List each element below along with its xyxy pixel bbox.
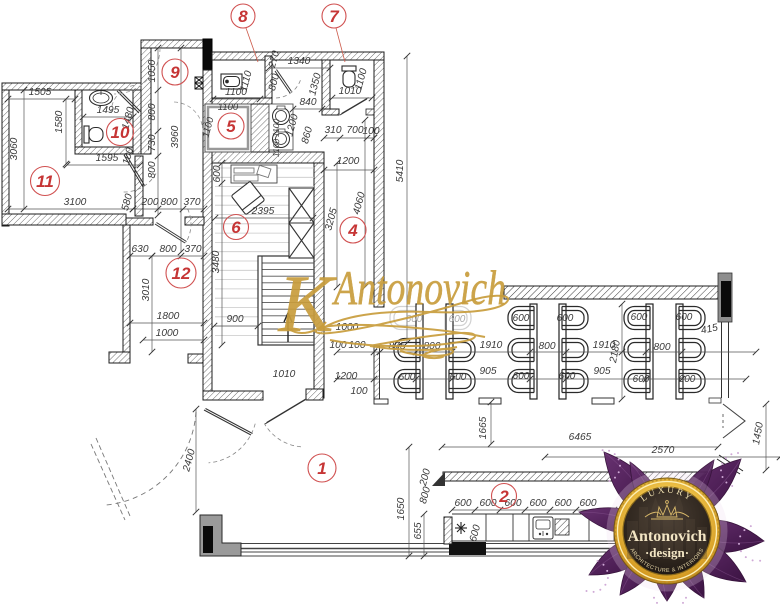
svg-text:Antonovich: Antonovich <box>332 260 506 315</box>
svg-text:905: 905 <box>480 366 497 377</box>
svg-text:1100: 1100 <box>271 138 282 157</box>
svg-text:900: 900 <box>227 314 244 325</box>
svg-text:9: 9 <box>170 63 180 82</box>
svg-text:310: 310 <box>325 125 342 136</box>
svg-text:1505: 1505 <box>29 87 52 98</box>
svg-text:5: 5 <box>226 117 236 136</box>
svg-text:1200: 1200 <box>337 156 360 167</box>
svg-text:1340: 1340 <box>288 56 311 67</box>
svg-text:1665: 1665 <box>478 416 489 439</box>
svg-text:K: K <box>278 258 338 349</box>
svg-text:600: 600 <box>450 372 467 383</box>
svg-text:100: 100 <box>351 386 368 397</box>
svg-text:4: 4 <box>347 221 358 240</box>
svg-text:800: 800 <box>147 103 158 120</box>
svg-text:7: 7 <box>329 7 340 26</box>
svg-text:600: 600 <box>676 312 693 323</box>
svg-text:1100: 1100 <box>218 102 239 113</box>
svg-text:1650: 1650 <box>396 497 407 520</box>
svg-text:700: 700 <box>347 125 364 136</box>
svg-text:1910: 1910 <box>480 340 503 351</box>
svg-text:6465: 6465 <box>569 432 592 443</box>
svg-text:600: 600 <box>633 374 650 385</box>
svg-text:800: 800 <box>147 161 158 178</box>
svg-text:800: 800 <box>539 341 556 352</box>
svg-text:1: 1 <box>317 459 326 478</box>
svg-text:600: 600 <box>455 498 472 509</box>
svg-text:600: 600 <box>513 371 530 382</box>
svg-text:200: 200 <box>141 197 159 208</box>
svg-text:600: 600 <box>449 314 466 325</box>
svg-text:600: 600 <box>513 313 530 324</box>
svg-text:5410: 5410 <box>395 159 406 182</box>
svg-text:10: 10 <box>111 123 130 142</box>
svg-text:8: 8 <box>238 7 248 26</box>
svg-text:630: 630 <box>132 244 149 255</box>
svg-text:1000: 1000 <box>156 328 179 339</box>
svg-text:Antonovich: Antonovich <box>627 528 706 545</box>
svg-text:11: 11 <box>36 172 54 191</box>
svg-text:600: 600 <box>212 165 223 182</box>
svg-text:655: 655 <box>413 522 424 539</box>
svg-text:1580: 1580 <box>54 110 65 133</box>
svg-text:1200: 1200 <box>335 371 358 382</box>
svg-text:3060: 3060 <box>9 137 20 160</box>
svg-text:1100: 1100 <box>271 118 282 137</box>
svg-text:840: 840 <box>300 97 317 108</box>
svg-text:800: 800 <box>161 197 178 208</box>
svg-text:600: 600 <box>530 498 547 509</box>
svg-text:1595: 1595 <box>96 153 119 164</box>
svg-text:2: 2 <box>498 487 509 506</box>
svg-text:600: 600 <box>399 372 416 383</box>
svg-text:1495: 1495 <box>97 105 120 116</box>
svg-text:·design·: ·design· <box>645 545 689 560</box>
svg-text:3010: 3010 <box>141 278 152 301</box>
svg-text:1010: 1010 <box>273 369 296 380</box>
svg-text:600: 600 <box>631 312 648 323</box>
svg-text:3480: 3480 <box>211 250 222 273</box>
svg-text:6: 6 <box>231 218 241 237</box>
svg-text:800: 800 <box>160 244 177 255</box>
svg-text:2570: 2570 <box>651 445 675 456</box>
svg-text:1800: 1800 <box>157 311 180 322</box>
svg-text:905: 905 <box>594 366 611 377</box>
svg-text:800: 800 <box>654 342 671 353</box>
svg-text:12: 12 <box>172 264 191 283</box>
svg-text:600: 600 <box>555 498 572 509</box>
svg-text:1050: 1050 <box>147 59 158 82</box>
svg-text:600: 600 <box>679 374 696 385</box>
svg-text:370: 370 <box>185 244 202 255</box>
svg-text:600: 600 <box>557 313 574 324</box>
svg-text:370: 370 <box>184 197 201 208</box>
svg-text:3960: 3960 <box>170 125 181 148</box>
svg-text:600: 600 <box>559 371 576 382</box>
svg-text:2395: 2395 <box>251 206 275 217</box>
svg-text:600: 600 <box>580 498 597 509</box>
svg-text:3100: 3100 <box>64 197 87 208</box>
svg-text:730: 730 <box>147 134 158 151</box>
